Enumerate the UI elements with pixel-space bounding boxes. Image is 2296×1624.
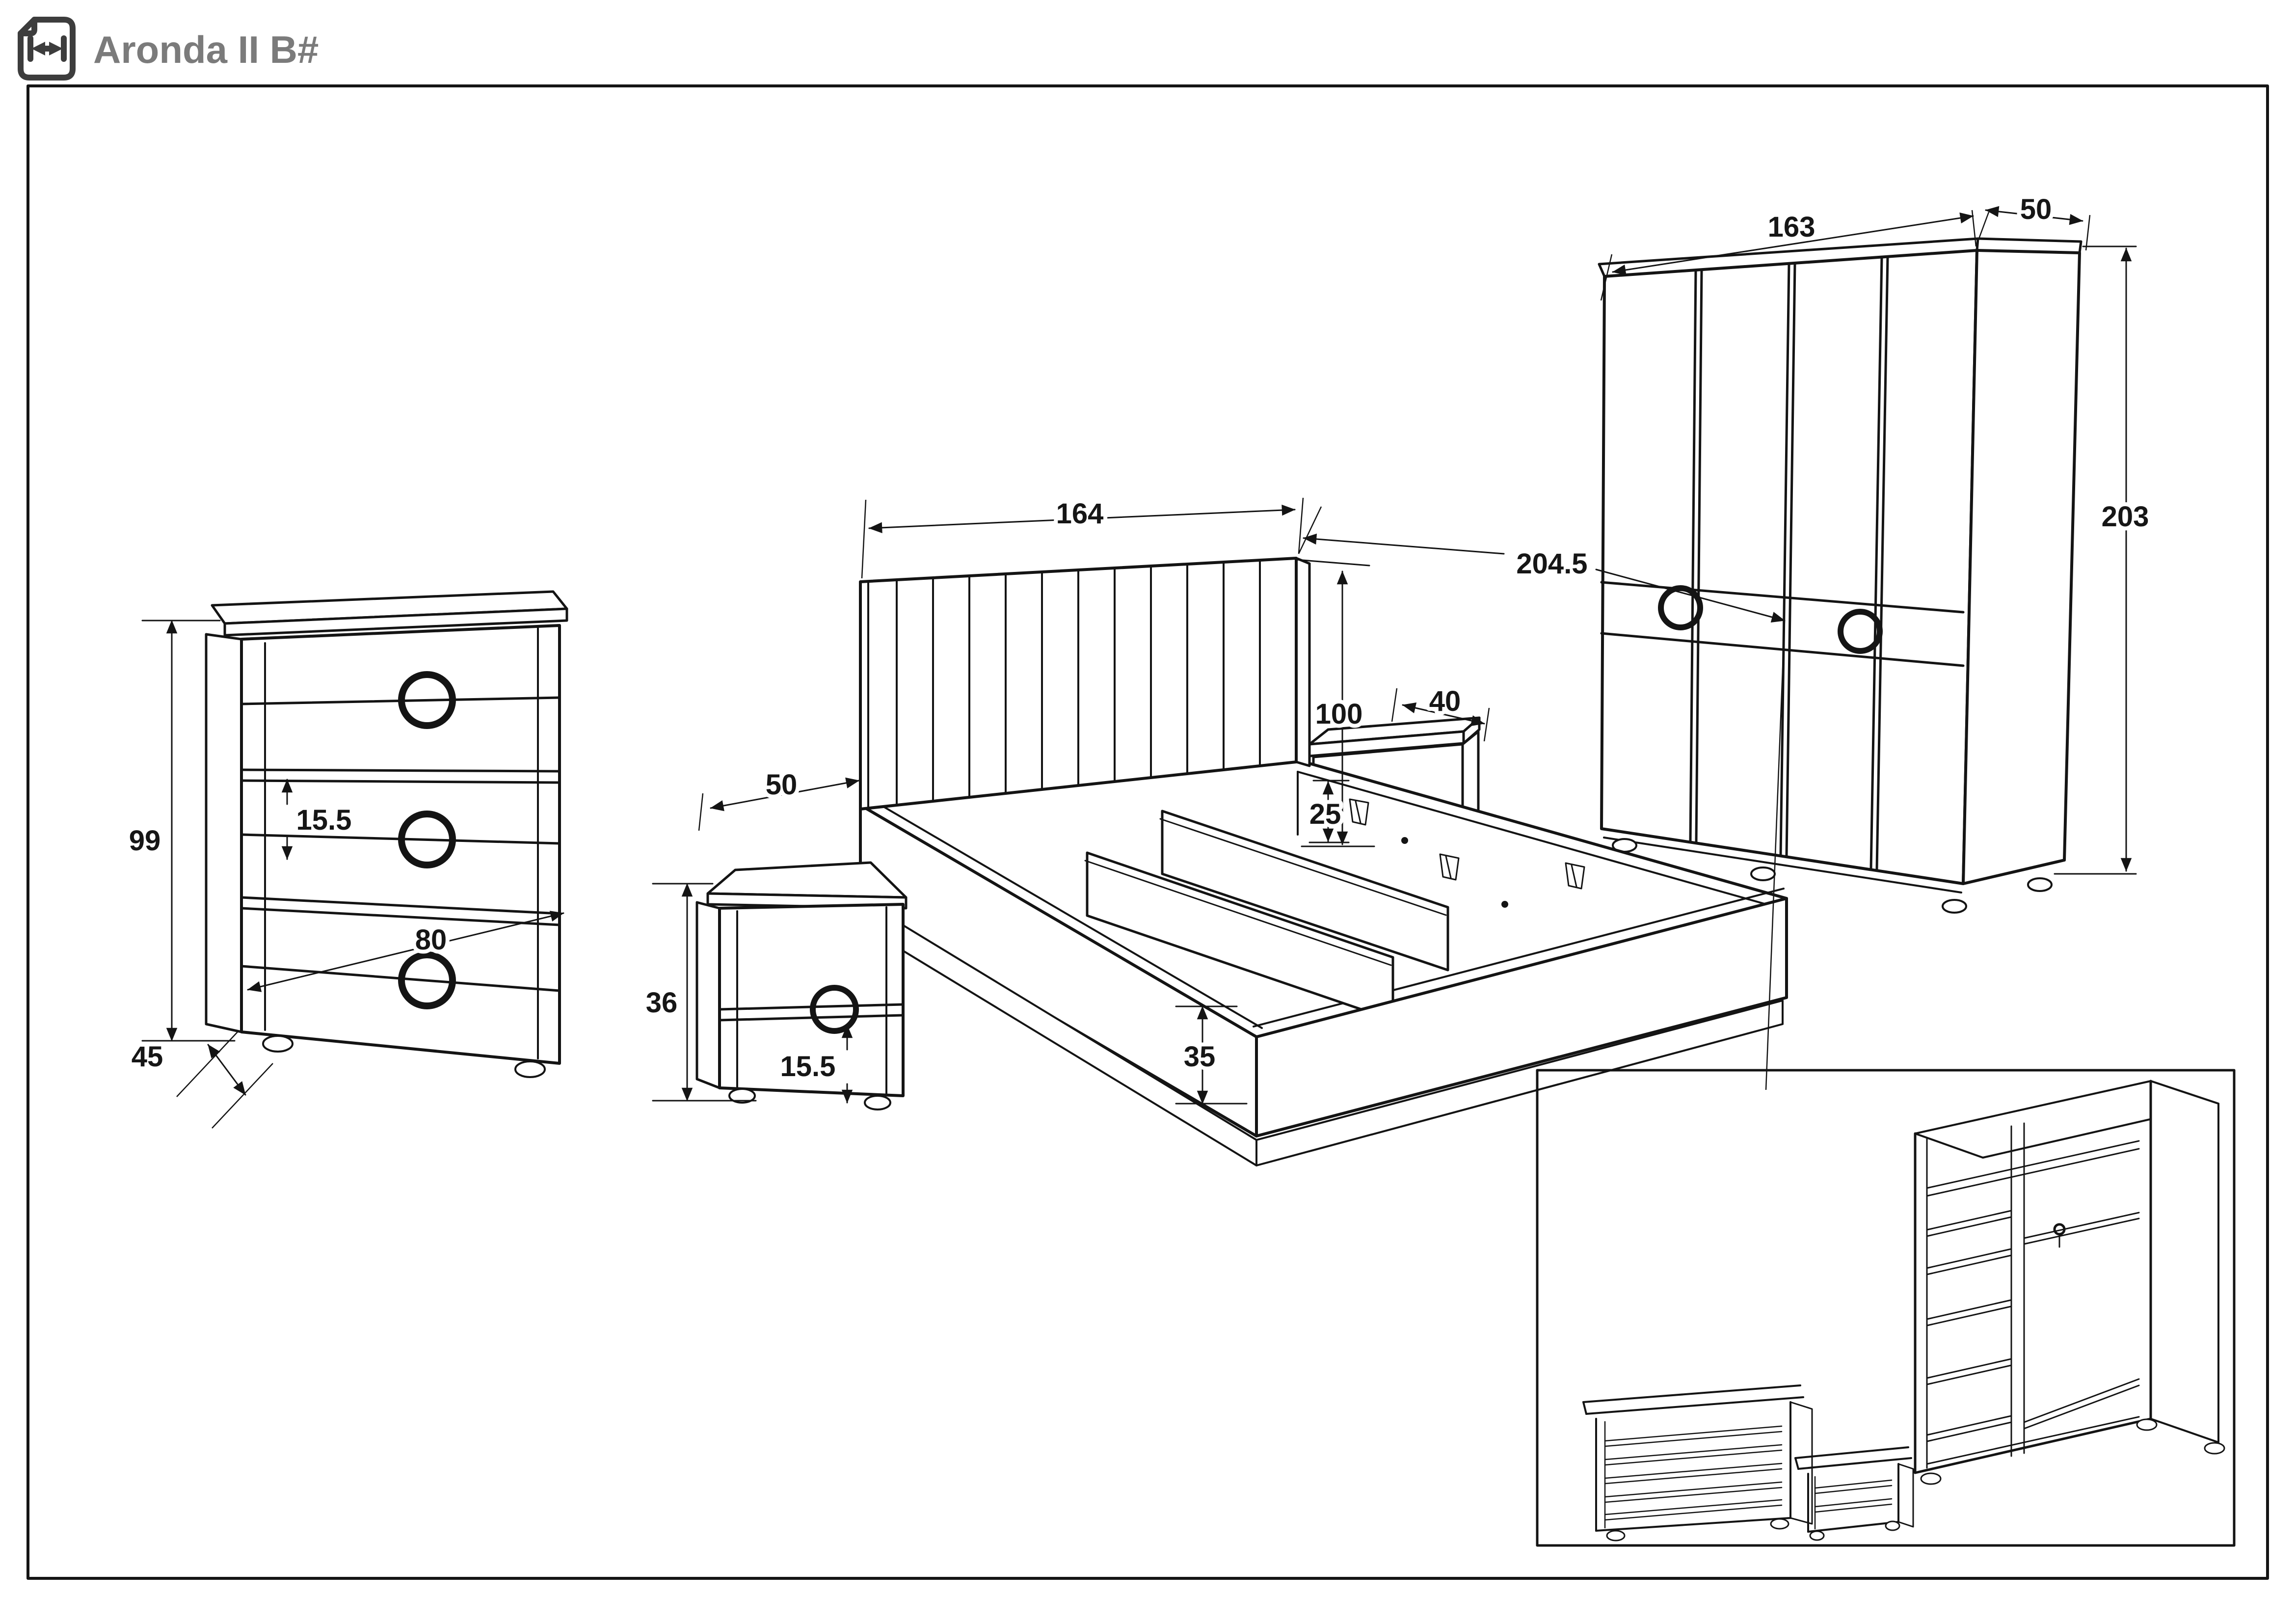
- width-dimension-page-icon: [21, 20, 73, 78]
- dim-dresser-drawer-height: 15.5: [296, 804, 352, 836]
- dim-headboard-height: 100: [1315, 698, 1363, 730]
- dim-bed-base-height: 35: [1184, 1041, 1216, 1073]
- furniture-dimension-drawing: Aronda II B# 99 15.5 80: [0, 0, 2296, 1624]
- inset-wardrobe-interior: [1915, 1081, 2224, 1484]
- technical-drawing-sheet: Aronda II B# 99 15.5 80: [0, 0, 2296, 1624]
- inset-dresser-interior: [1583, 1385, 1812, 1541]
- wardrobe-drawing: 163 50 203: [1599, 193, 2149, 913]
- dim-nightstand-drawer-height: 15.5: [780, 1051, 836, 1083]
- dim-bed-inner-height: 25: [1309, 798, 1341, 830]
- dim-dresser-width: 80: [415, 924, 447, 956]
- dim-headboard-width: 164: [1056, 498, 1104, 530]
- dresser-drawing: 99 15.5 80 45: [129, 592, 567, 1128]
- dim-nightstand-depth: 40: [1429, 685, 1461, 717]
- dim-wardrobe-depth: 50: [2020, 193, 2052, 225]
- dim-nightstand-height: 36: [646, 987, 678, 1019]
- interior-detail-inset: [1537, 1070, 2234, 1545]
- page-title: Aronda II B#: [93, 28, 319, 71]
- dim-nightstand-width: 50: [766, 769, 798, 801]
- inset-nightstand-interior: [1795, 1447, 1913, 1540]
- dim-dresser-depth: 45: [132, 1041, 163, 1073]
- dim-wardrobe-width: 163: [1768, 211, 1815, 243]
- inset-border: [1537, 1070, 2234, 1545]
- dim-dresser-height: 99: [129, 825, 161, 857]
- dim-bed-length: 204.5: [1516, 548, 1587, 580]
- dim-wardrobe-height: 203: [2102, 501, 2149, 533]
- title-block: Aronda II B#: [21, 20, 319, 78]
